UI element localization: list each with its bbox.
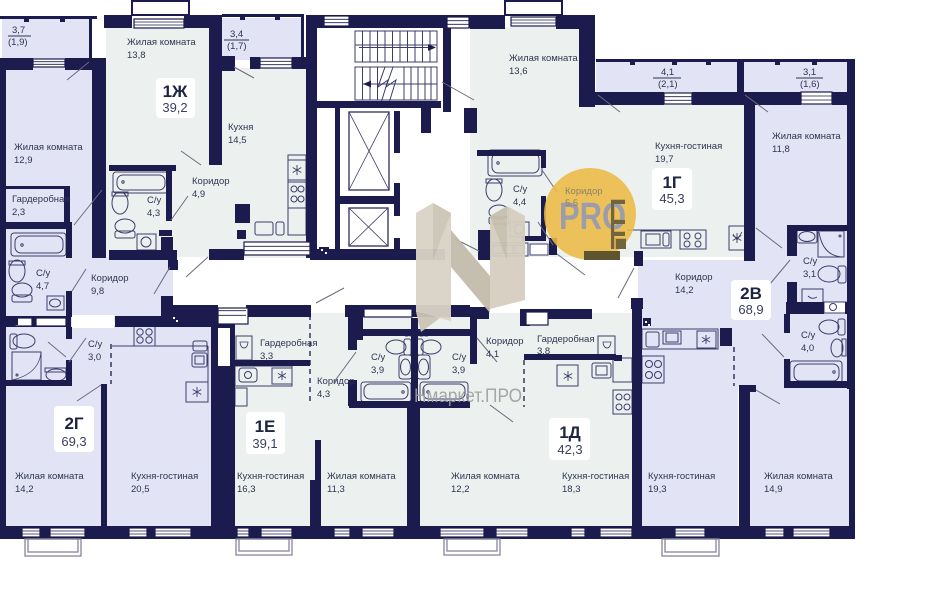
svg-text:Жилая комната: Жилая комната <box>509 53 578 64</box>
svg-text:С/у: С/у <box>371 352 386 363</box>
svg-text:19,3: 19,3 <box>648 484 667 495</box>
svg-text:3,9: 3,9 <box>371 365 384 376</box>
svg-text:Кухня-гостиная: Кухня-гостиная <box>648 471 715 482</box>
svg-text:4,3: 4,3 <box>147 208 160 219</box>
svg-text:14,5: 14,5 <box>228 135 247 146</box>
svg-text:Жилая комната: Жилая комната <box>127 37 196 48</box>
svg-text:2Г: 2Г <box>64 414 83 433</box>
svg-text:4,1: 4,1 <box>486 349 499 360</box>
svg-text:Кухня-гостиная: Кухня-гостиная <box>131 471 198 482</box>
svg-text:3,7: 3,7 <box>12 25 25 36</box>
svg-text:Жилая комната: Жилая комната <box>14 142 83 153</box>
svg-text:45,3: 45,3 <box>659 191 684 206</box>
svg-text:14,2: 14,2 <box>675 285 694 296</box>
svg-text:Кухня-гостиная: Кухня-гостиная <box>562 471 629 482</box>
svg-text:С/у: С/у <box>513 184 528 195</box>
svg-text:(1,9): (1,9) <box>8 37 28 48</box>
svg-text:Коридор: Коридор <box>91 273 129 284</box>
svg-text:3,8: 3,8 <box>537 346 550 357</box>
svg-text:Жилая комната: Жилая комната <box>327 471 396 482</box>
svg-text:Коридор: Коридор <box>317 376 355 387</box>
svg-text:14,2: 14,2 <box>15 484 34 495</box>
svg-text:3,1: 3,1 <box>803 269 816 280</box>
svg-text:Гардеробная: Гардеробная <box>12 194 69 205</box>
svg-text:68,9: 68,9 <box>738 302 763 317</box>
svg-text:Коридор: Коридор <box>192 176 230 187</box>
svg-text:Гардеробная: Гардеробная <box>537 334 594 345</box>
svg-text:2,3: 2,3 <box>12 207 25 218</box>
svg-text:Гардеробная: Гардеробная <box>260 338 317 349</box>
svg-text:(2,1): (2,1) <box>658 79 678 90</box>
svg-text:(1,6): (1,6) <box>800 79 820 90</box>
svg-text:39,1: 39,1 <box>252 436 277 451</box>
svg-text:18,3: 18,3 <box>562 484 581 495</box>
svg-text:3,3: 3,3 <box>260 351 273 362</box>
svg-text:Жилая комната: Жилая комната <box>772 131 841 142</box>
svg-text:16,3: 16,3 <box>237 484 256 495</box>
svg-text:12,9: 12,9 <box>14 155 33 166</box>
svg-text:19,7: 19,7 <box>655 154 674 165</box>
svg-text:Жилая комната: Жилая комната <box>451 471 520 482</box>
svg-text:С/у: С/у <box>452 352 467 363</box>
svg-text:3,0: 3,0 <box>88 352 101 363</box>
svg-text:4,9: 4,9 <box>192 189 205 200</box>
svg-text:5,5: 5,5 <box>565 198 578 209</box>
svg-text:С/у: С/у <box>803 256 818 267</box>
svg-text:Коридор: Коридор <box>675 272 713 283</box>
svg-text:1Г: 1Г <box>662 173 681 192</box>
svg-text:12,2: 12,2 <box>451 484 470 495</box>
svg-text:Кухня-гостиная: Кухня-гостиная <box>655 141 722 152</box>
svg-text:4,0: 4,0 <box>801 343 814 354</box>
svg-text:13,6: 13,6 <box>509 66 528 77</box>
svg-text:4,1: 4,1 <box>661 67 674 78</box>
svg-text:Жилая комната: Жилая комната <box>15 471 84 482</box>
svg-text:4,3: 4,3 <box>317 389 330 400</box>
svg-text:4,7: 4,7 <box>36 281 49 292</box>
svg-text:Коридор: Коридор <box>565 186 603 197</box>
svg-text:1Д: 1Д <box>559 423 581 442</box>
svg-text:Жилая комната: Жилая комната <box>764 471 833 482</box>
svg-text:С/у: С/у <box>88 339 103 350</box>
svg-text:20,5: 20,5 <box>131 484 150 495</box>
svg-text:69,3: 69,3 <box>61 434 86 449</box>
svg-text:С/у: С/у <box>36 268 51 279</box>
svg-text:39,2: 39,2 <box>162 100 187 115</box>
svg-text:11,8: 11,8 <box>772 144 790 155</box>
svg-text:9,8: 9,8 <box>91 286 104 297</box>
svg-text:2В: 2В <box>740 284 762 303</box>
svg-text:11,3: 11,3 <box>327 484 345 495</box>
svg-text:3,1: 3,1 <box>803 67 816 78</box>
svg-text:3,4: 3,4 <box>230 29 243 40</box>
svg-text:3,9: 3,9 <box>452 365 465 376</box>
svg-text:14,9: 14,9 <box>764 484 783 495</box>
svg-text:1Е: 1Е <box>255 417 276 436</box>
svg-text:4,4: 4,4 <box>513 197 526 208</box>
svg-text:1Ж: 1Ж <box>163 82 188 101</box>
svg-text:13,8: 13,8 <box>127 50 146 61</box>
svg-text:Кухня-гостиная: Кухня-гостиная <box>237 471 304 482</box>
svg-text:Коридор: Коридор <box>486 336 524 347</box>
svg-text:42,3: 42,3 <box>557 442 582 457</box>
svg-text:С/у: С/у <box>147 195 162 206</box>
svg-text:Кухня: Кухня <box>228 122 253 133</box>
svg-text:(1,7): (1,7) <box>227 41 247 52</box>
svg-text:С/у: С/у <box>801 330 816 341</box>
svg-text:Нмаркет.ПРО: Нмаркет.ПРО <box>414 386 522 407</box>
